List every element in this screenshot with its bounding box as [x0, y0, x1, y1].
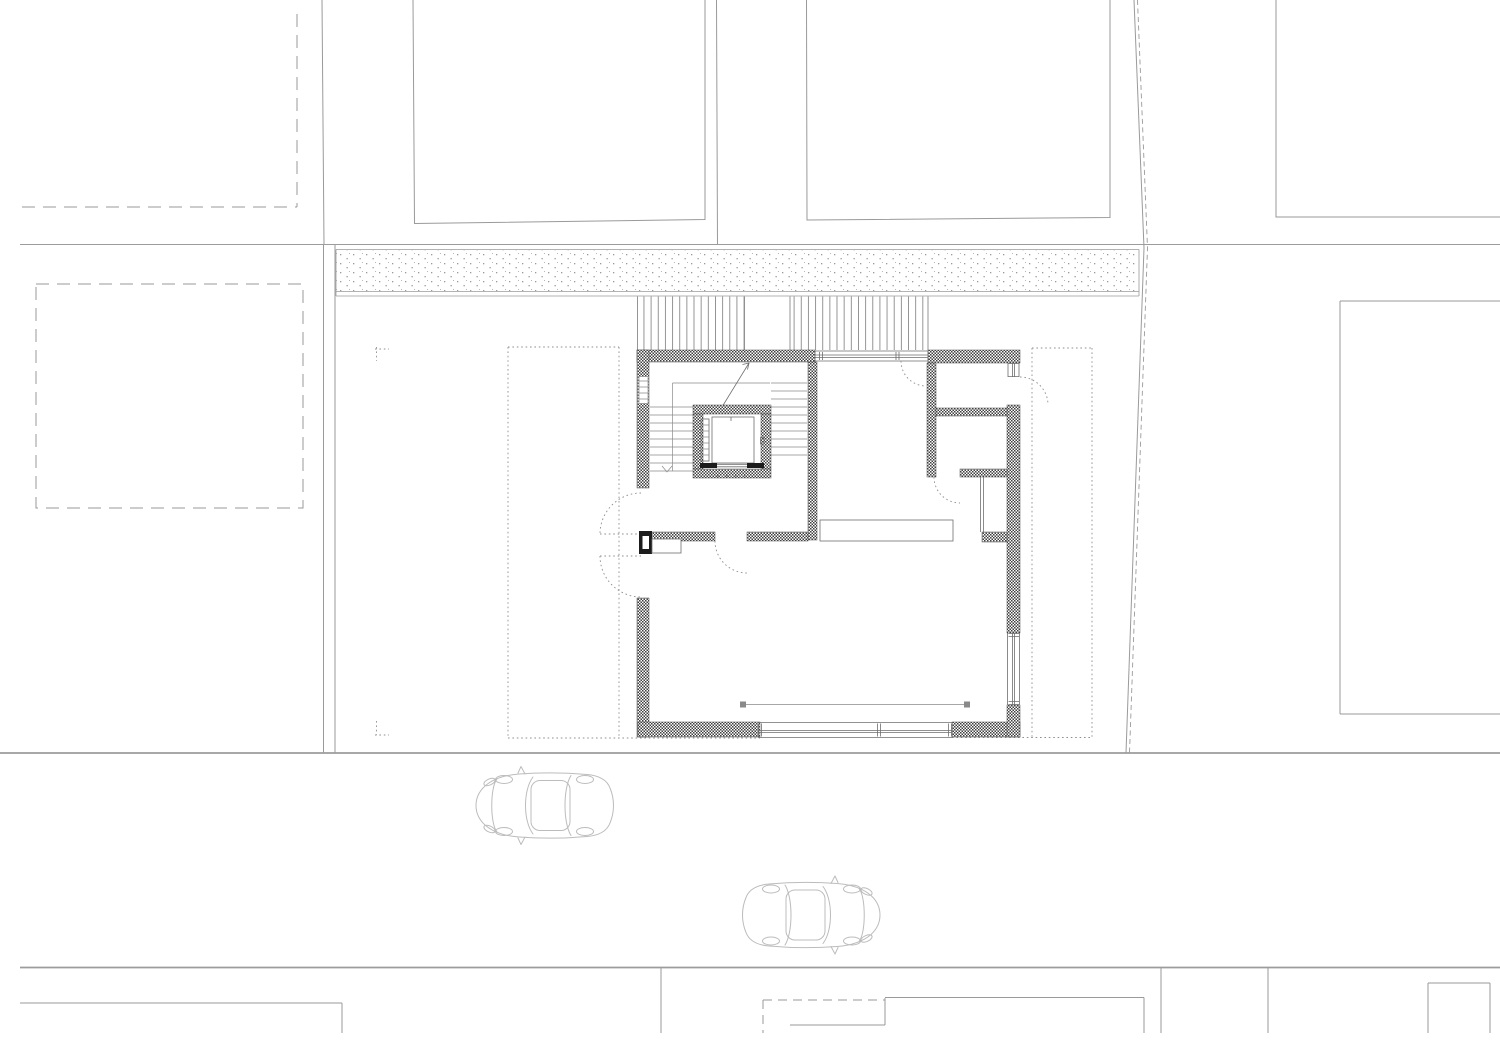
window-east-lower [1008, 633, 1020, 705]
door-swing-west-lower [600, 556, 641, 597]
window-band-top [815, 351, 928, 361]
street-south [0, 753, 1500, 968]
parcel-boundaries [324, 0, 1148, 753]
sidewalk-strip [336, 250, 1139, 297]
site-plan-canvas: Architectural site plan — ground floor w… [0, 0, 1500, 1060]
window-east-upper [1008, 363, 1019, 377]
corner-markers [375, 347, 389, 735]
building [600, 350, 1048, 738]
stair [650, 363, 807, 472]
outdoor-stair-west [638, 297, 745, 351]
kitchen-counter [820, 520, 953, 541]
elevator-door-jamb [747, 463, 764, 468]
car-2 [743, 876, 881, 954]
door-swing-north-entrance [901, 361, 926, 386]
terrace-outline-east [952, 348, 1092, 738]
entry-cabinet [652, 539, 681, 553]
stair-direction-arrow [722, 363, 749, 407]
door-swing-east-room [1020, 377, 1048, 405]
door-swing-west-upper [600, 493, 641, 534]
window-band-bottom [740, 702, 970, 738]
elevator-cabin [712, 417, 754, 463]
car-1 [476, 767, 614, 845]
door-swing-entry-hall [715, 541, 747, 573]
wall-niche-window [639, 377, 649, 403]
parcels-south [20, 968, 1490, 1033]
outdoor-stair-east [790, 297, 928, 351]
door-swing-room-ne [934, 477, 960, 503]
outdoor-stairs [638, 297, 929, 351]
elevator-door-jamb [700, 463, 717, 468]
elevator [693, 405, 771, 478]
